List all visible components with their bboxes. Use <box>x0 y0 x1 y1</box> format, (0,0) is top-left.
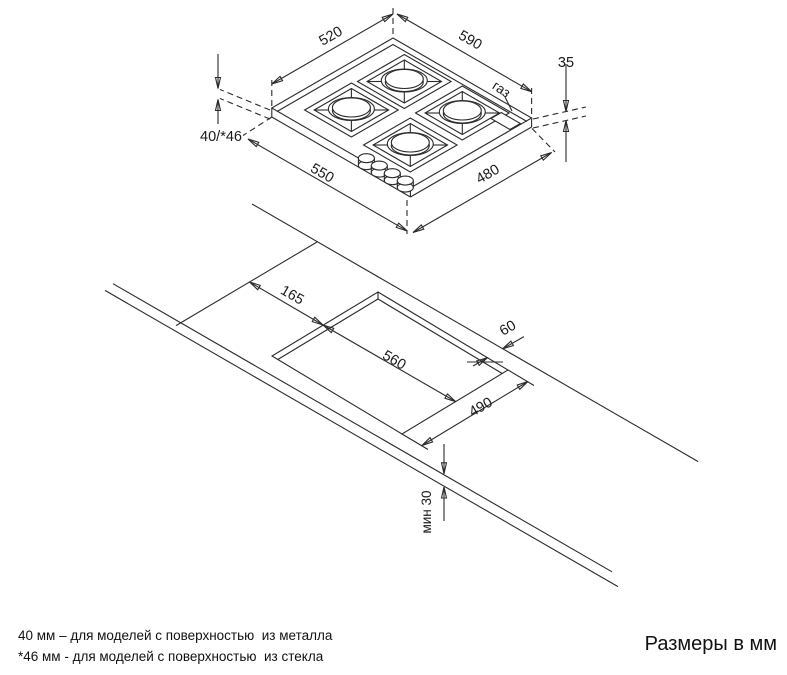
dim-min30-label: мин 30 <box>419 490 434 533</box>
worktop-drawing: 165 560 60 490 мин 30 <box>105 204 698 587</box>
dim-520-label: 520 <box>317 24 346 50</box>
dim-550-label: 550 <box>308 161 337 187</box>
units-label: Размеры в мм <box>645 633 777 656</box>
note-glass-models: *46 мм - для моделей с поверхностью из с… <box>18 649 323 664</box>
dim-60-label: 60 <box>497 318 519 340</box>
dim-490-label: 490 <box>467 395 496 421</box>
dim-165-label: 165 <box>278 283 307 309</box>
installation-drawing-page: 520 590 35 40/*46 550 480 газ <box>0 0 787 675</box>
hob-drawing: 520 590 35 40/*46 550 480 газ <box>200 8 586 234</box>
dim-35-label: 35 <box>558 55 574 71</box>
dim-40-46-label: 40/*46 <box>200 129 242 145</box>
knob <box>397 176 413 192</box>
installation-drawing: 520 590 35 40/*46 550 480 газ <box>0 0 787 675</box>
dim-590-label: 590 <box>456 28 485 54</box>
note-metal-models: 40 мм – для моделей с поверхностью из ме… <box>18 628 332 643</box>
